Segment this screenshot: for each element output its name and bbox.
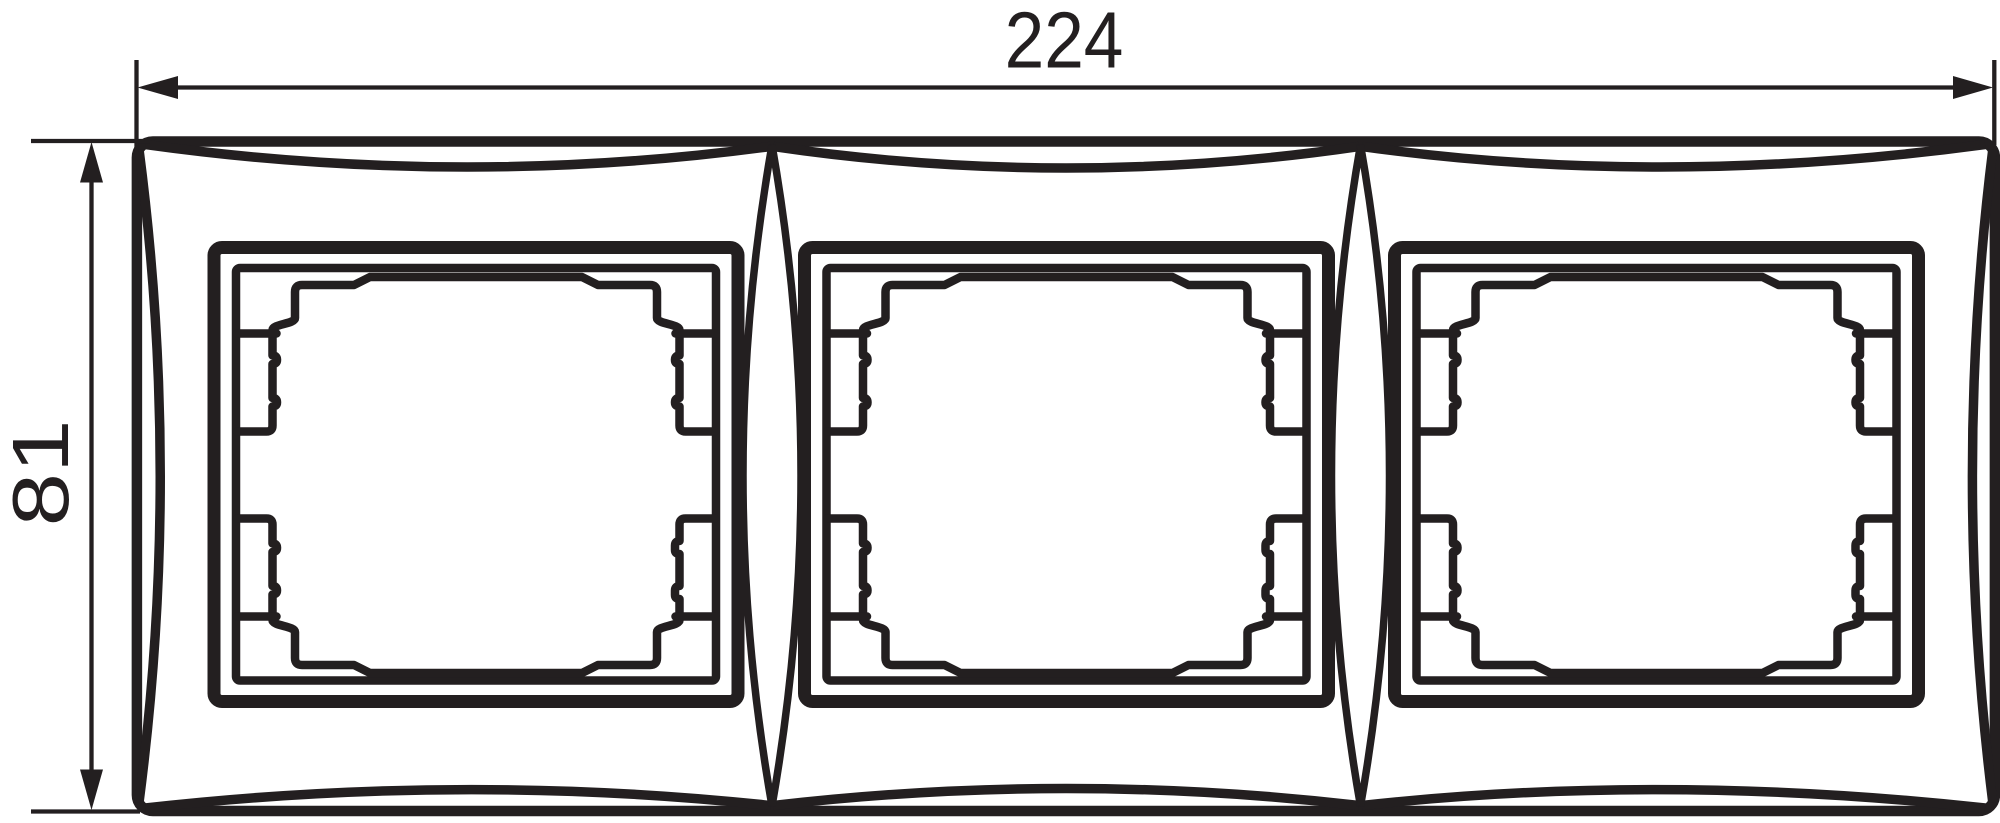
svg-text:81: 81	[0, 420, 85, 527]
svg-text:224: 224	[1005, 0, 1124, 85]
